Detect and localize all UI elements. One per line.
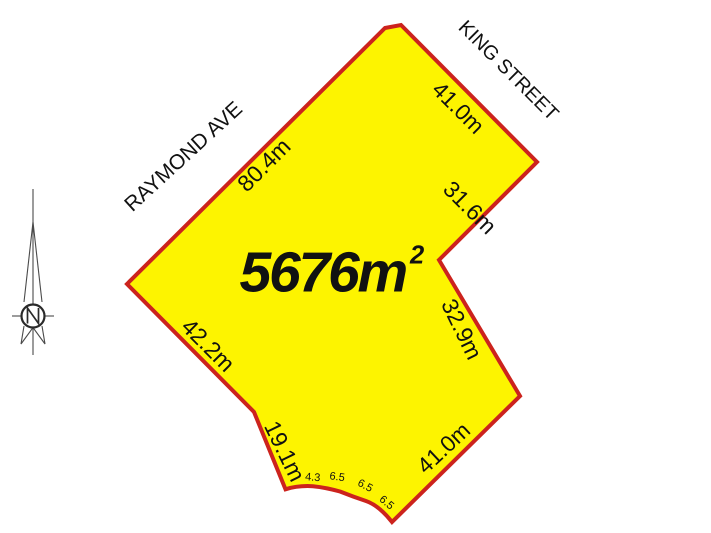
svg-text:5676m: 5676m xyxy=(240,241,407,305)
svg-text:6.5: 6.5 xyxy=(329,470,346,484)
svg-text:2: 2 xyxy=(409,242,424,270)
svg-text:4.3: 4.3 xyxy=(305,471,321,484)
